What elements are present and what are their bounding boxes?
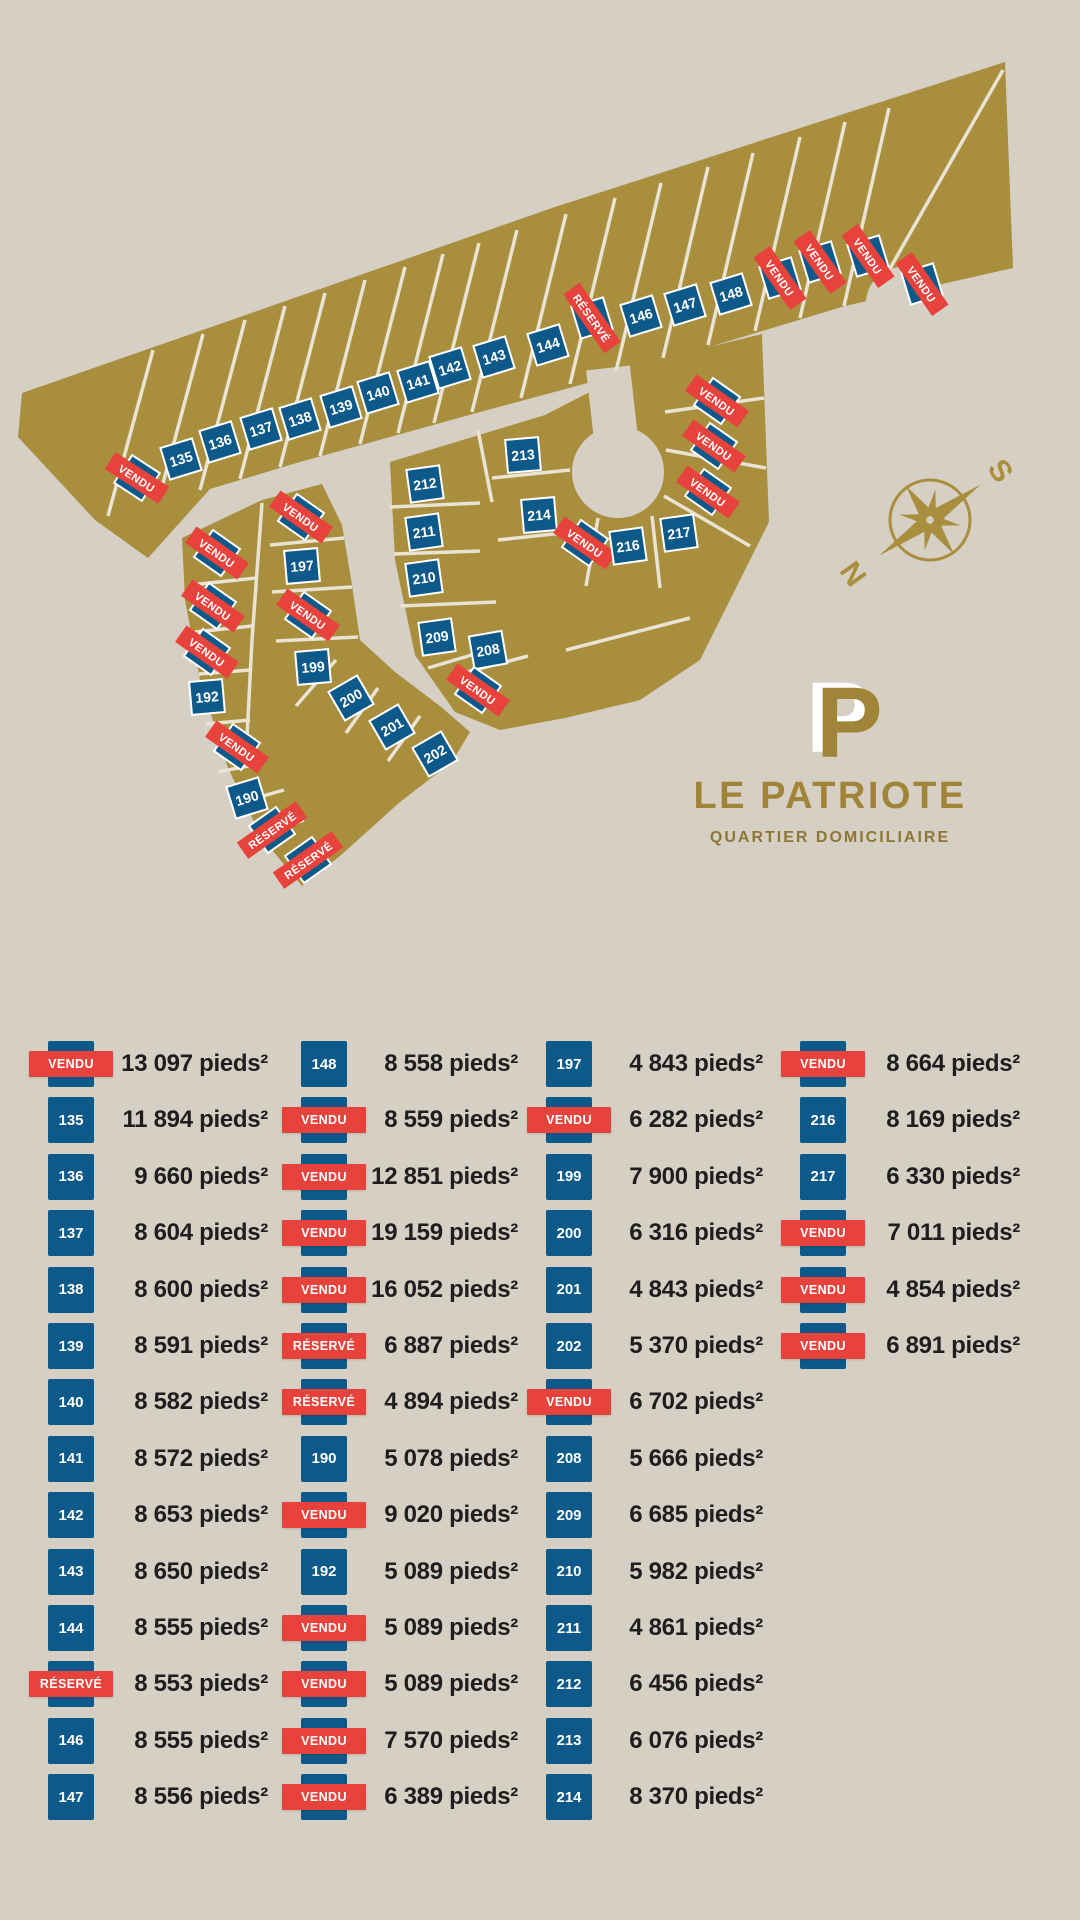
legend-lot-size: 8 559 pieds² [355,1097,518,1143]
legend-lot-size: 6 282 pieds² [600,1097,763,1143]
legend-lot-139: 139 [48,1323,94,1369]
legend-lot-148: 148 [301,1041,347,1087]
legend-lot-142: 142 [48,1492,94,1538]
legend-lot-216: 216 [800,1097,846,1143]
legend-lot-size: 8 370 pieds² [600,1774,763,1820]
legend-lot-size: 8 555 pieds² [102,1718,268,1764]
legend-lot-147: 147 [48,1774,94,1820]
legend-lot-size: 8 553 pieds² [102,1661,268,1707]
legend-status-banner: VENDU [282,1784,366,1810]
legend-lot-size: 5 370 pieds² [600,1323,763,1369]
legend-lot-size: 5 089 pieds² [355,1661,518,1707]
legend-lot-146: 146 [48,1718,94,1764]
legend-lot-size: 8 169 pieds² [854,1097,1020,1143]
legend-lot-size: 6 887 pieds² [355,1323,518,1369]
legend-lot-201: 201 [546,1267,592,1313]
legend-lot-size: 8 604 pieds² [102,1210,268,1256]
legend-lot-size: 8 572 pieds² [102,1436,268,1482]
legend-status-banner: RÉSERVÉ [282,1333,366,1359]
legend-lot-size: 19 159 pieds² [355,1210,518,1256]
legend-lot-138: 138 [48,1267,94,1313]
legend-lot-size: 8 653 pieds² [102,1492,268,1538]
legend-lot-size: 9 660 pieds² [102,1154,268,1200]
legend-status-banner: VENDU [781,1220,865,1246]
legend-lot-size: 5 666 pieds² [600,1436,763,1482]
legend-lot-size: 5 089 pieds² [355,1549,518,1595]
legend-lot-size: 8 582 pieds² [102,1379,268,1425]
legend-lot-197: 197 [546,1041,592,1087]
legend-status-banner: VENDU [781,1333,865,1359]
legend-lot-208: 208 [546,1436,592,1482]
legend-status-banner: VENDU [282,1220,366,1246]
legend-status-banner: VENDU [282,1277,366,1303]
legend-lot-137: 137 [48,1210,94,1256]
legend-status-banner: RÉSERVÉ [29,1671,113,1697]
legend-lot-200: 200 [546,1210,592,1256]
legend-lot-212: 212 [546,1661,592,1707]
legend-status-banner: VENDU [527,1107,611,1133]
legend-lot-217: 217 [800,1154,846,1200]
lot-size-legend: VENDU13 097 pieds²13511 894 pieds²1369 6… [0,0,1080,1920]
legend-lot-size: 7 570 pieds² [355,1718,518,1764]
legend-status-banner: VENDU [781,1277,865,1303]
legend-status-banner: VENDU [29,1051,113,1077]
legend-lot-size: 7 011 pieds² [854,1210,1020,1256]
legend-lot-192: 192 [301,1549,347,1595]
legend-lot-size: 9 020 pieds² [355,1492,518,1538]
legend-lot-size: 6 891 pieds² [854,1323,1020,1369]
legend-lot-size: 6 316 pieds² [600,1210,763,1256]
legend-lot-141: 141 [48,1436,94,1482]
legend-lot-size: 8 664 pieds² [854,1041,1020,1087]
legend-lot-size: 5 078 pieds² [355,1436,518,1482]
legend-lot-size: 5 982 pieds² [600,1549,763,1595]
legend-lot-209: 209 [546,1492,592,1538]
legend-lot-size: 4 894 pieds² [355,1379,518,1425]
legend-lot-213: 213 [546,1718,592,1764]
legend-lot-size: 6 389 pieds² [355,1774,518,1820]
legend-lot-size: 6 076 pieds² [600,1718,763,1764]
legend-lot-size: 4 843 pieds² [600,1041,763,1087]
legend-lot-size: 6 685 pieds² [600,1492,763,1538]
legend-lot-size: 6 702 pieds² [600,1379,763,1425]
legend-lot-size: 12 851 pieds² [355,1154,518,1200]
legend-lot-size: 6 330 pieds² [854,1154,1020,1200]
legend-lot-214: 214 [546,1774,592,1820]
legend-lot-size: 13 097 pieds² [102,1041,268,1087]
legend-lot-202: 202 [546,1323,592,1369]
legend-lot-size: 4 854 pieds² [854,1267,1020,1313]
legend-lot-size: 11 894 pieds² [102,1097,268,1143]
legend-status-banner: RÉSERVÉ [282,1389,366,1415]
legend-status-banner: VENDU [527,1389,611,1415]
legend-lot-210: 210 [546,1549,592,1595]
legend-lot-143: 143 [48,1549,94,1595]
legend-lot-size: 8 650 pieds² [102,1549,268,1595]
legend-lot-size: 4 861 pieds² [600,1605,763,1651]
legend-lot-size: 5 089 pieds² [355,1605,518,1651]
legend-lot-199: 199 [546,1154,592,1200]
legend-lot-size: 16 052 pieds² [355,1267,518,1313]
legend-status-banner: VENDU [282,1671,366,1697]
legend-lot-140: 140 [48,1379,94,1425]
legend-lot-size: 4 843 pieds² [600,1267,763,1313]
legend-lot-size: 8 555 pieds² [102,1605,268,1651]
legend-status-banner: VENDU [282,1502,366,1528]
legend-lot-190: 190 [301,1436,347,1482]
legend-lot-size: 7 900 pieds² [600,1154,763,1200]
legend-status-banner: VENDU [282,1164,366,1190]
legend-lot-size: 8 558 pieds² [355,1041,518,1087]
legend-lot-size: 8 600 pieds² [102,1267,268,1313]
legend-lot-135: 135 [48,1097,94,1143]
legend-status-banner: VENDU [282,1615,366,1641]
site-plan-page: { "colors": { "background": "#d6d0c4", "… [0,0,1080,1920]
legend-status-banner: VENDU [282,1107,366,1133]
legend-lot-136: 136 [48,1154,94,1200]
legend-lot-size: 8 556 pieds² [102,1774,268,1820]
legend-lot-211: 211 [546,1605,592,1651]
legend-lot-size: 6 456 pieds² [600,1661,763,1707]
legend-status-banner: VENDU [781,1051,865,1077]
legend-status-banner: VENDU [282,1728,366,1754]
legend-lot-size: 8 591 pieds² [102,1323,268,1369]
legend-lot-144: 144 [48,1605,94,1651]
